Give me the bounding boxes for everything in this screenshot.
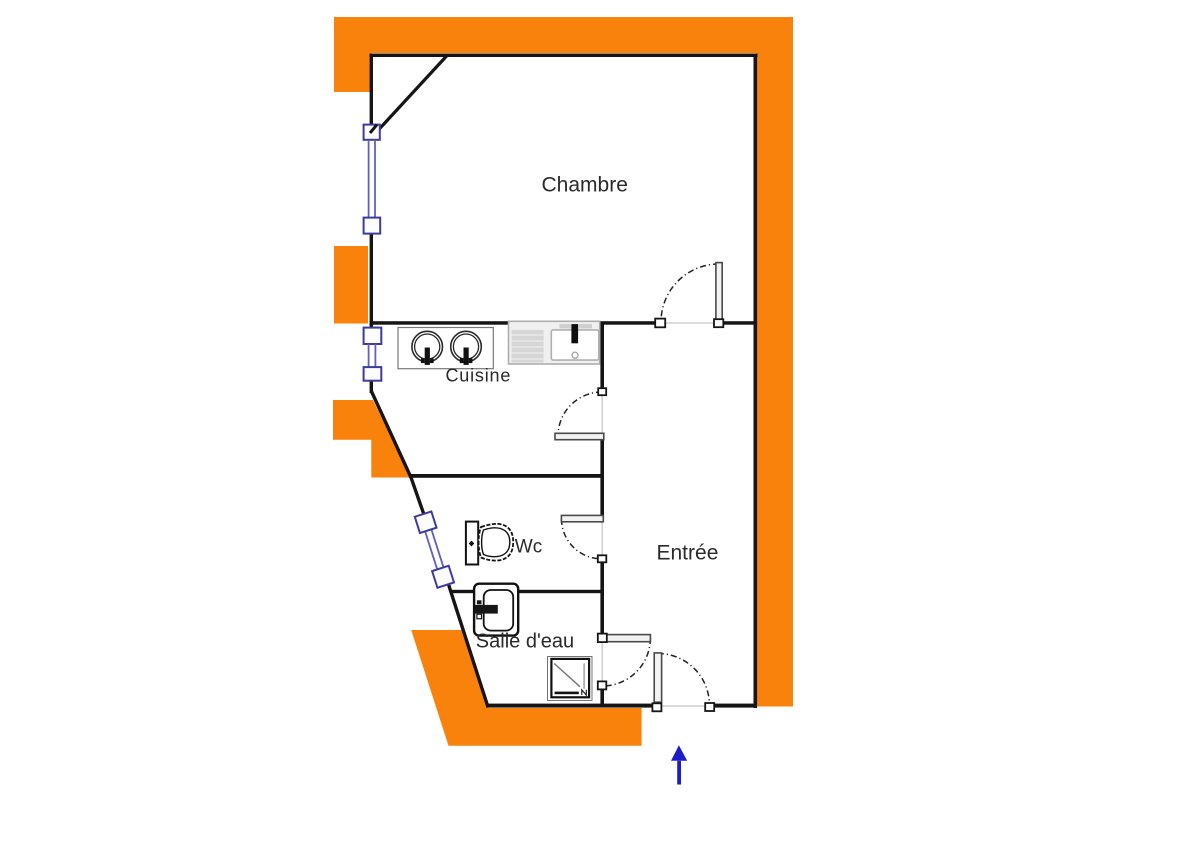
svg-text:Chambre: Chambre — [542, 174, 628, 197]
svg-text:Wc: Wc — [515, 536, 542, 557]
svg-text:Cuisine: Cuisine — [446, 365, 512, 385]
svg-text:Salle d'eau: Salle d'eau — [476, 631, 574, 653]
svg-text:Entrée: Entrée — [657, 542, 719, 565]
